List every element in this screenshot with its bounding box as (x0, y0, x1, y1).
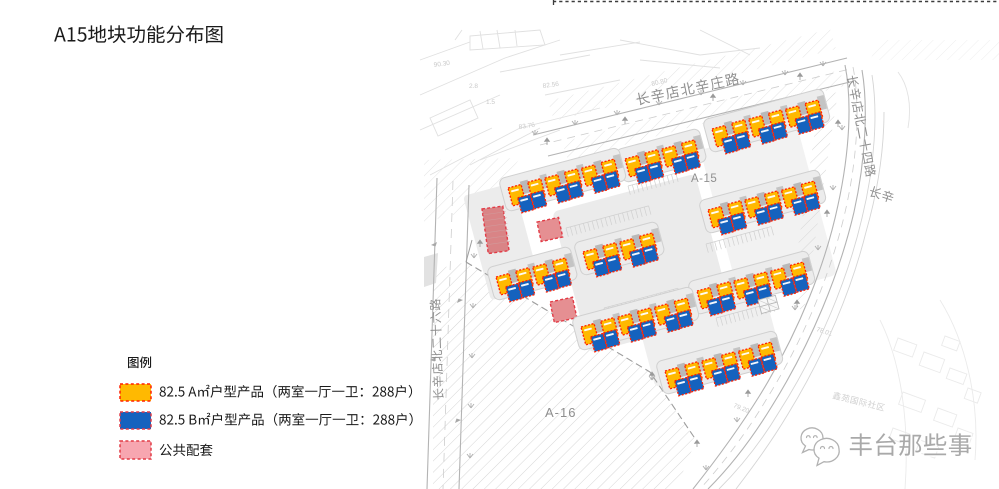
svg-text:90.30: 90.30 (433, 60, 450, 69)
svg-text:83.76: 83.76 (518, 122, 535, 131)
svg-text:A-16: A-16 (545, 405, 576, 420)
svg-text:2.8: 2.8 (469, 83, 478, 90)
svg-text:1.5: 1.5 (486, 99, 495, 106)
svg-text:79.20: 79.20 (732, 402, 750, 415)
svg-text:82.56: 82.56 (542, 81, 559, 90)
svg-text:A-15: A-15 (691, 173, 717, 185)
